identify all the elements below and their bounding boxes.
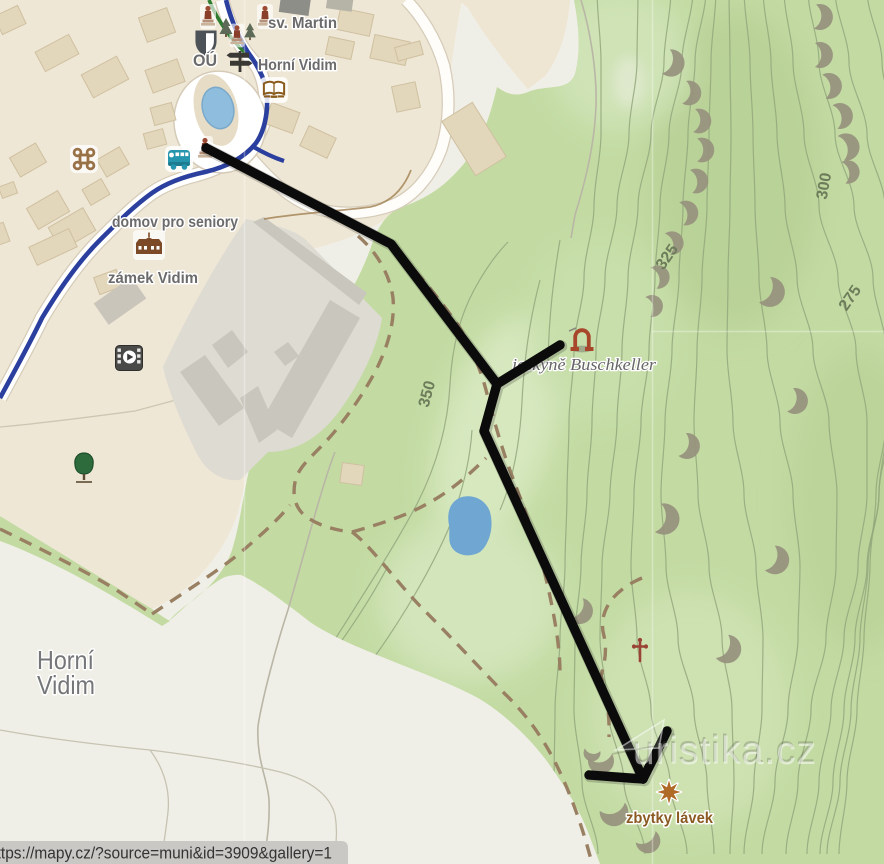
svg-text:domov pro seniory: domov pro seniory [112, 214, 238, 231]
svg-text:OÚ: OÚ [193, 51, 217, 70]
svg-text:zbytky lávek: zbytky lávek [626, 810, 713, 827]
svg-text:sv. Martin: sv. Martin [268, 15, 337, 32]
svg-text:Horní Vidim: Horní Vidim [258, 57, 337, 74]
svg-text:zámek Vidim: zámek Vidim [108, 270, 198, 287]
svg-text:Vidim: Vidim [37, 670, 95, 700]
svg-text:https://mapy.cz/?source=muni&i: https://mapy.cz/?source=muni&id=3909&gal… [0, 845, 332, 863]
